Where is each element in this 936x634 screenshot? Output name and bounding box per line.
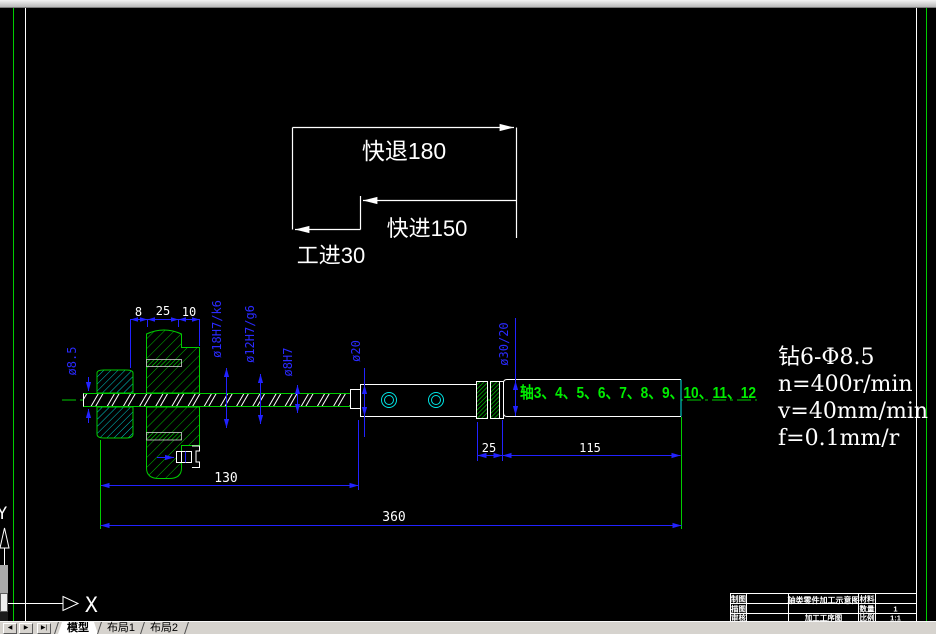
dim-dia30-20-label: ø30/20 bbox=[497, 322, 511, 365]
dim-len360-label: 360 bbox=[382, 510, 405, 525]
titleblock-scale-label: 比例 bbox=[860, 613, 875, 622]
machining-specs: 钻6-Φ8.5 n=400r/min v=40mm/min f=0.1mm/r bbox=[777, 345, 928, 451]
tab-divider bbox=[184, 622, 189, 634]
cad-window: 快退180 快进150 工进30 bbox=[0, 0, 936, 634]
scrollbar-thumb[interactable] bbox=[0, 593, 8, 612]
dim-len115-label: 115 bbox=[579, 441, 601, 455]
layout-tab-bar: ◀ ▶ ▶| 模型 布局1 布局2 bbox=[0, 621, 936, 634]
tab-nav-prev-button[interactable]: ▶ bbox=[19, 623, 33, 634]
dim-dia12-label: ø12H7/g6 bbox=[243, 305, 257, 363]
vertical-scrollbar[interactable] bbox=[0, 565, 8, 621]
titleblock-title: 轴类零件加工示意图 bbox=[788, 595, 860, 605]
drawing-canvas[interactable]: 快退180 快进150 工进30 bbox=[0, 8, 936, 621]
cycle-rapid-advance-label: 快进150 bbox=[387, 216, 468, 241]
titleblock-qty-value: 1 bbox=[893, 605, 897, 614]
dim-25-label: 25 bbox=[156, 304, 170, 318]
cycle-work-feed-label: 工进30 bbox=[297, 243, 365, 268]
spec-feedrate-label: v=40mm/min bbox=[777, 399, 928, 424]
cycle-rapid-retract-label: 快退180 bbox=[362, 138, 446, 164]
dim-len130-label: 130 bbox=[214, 471, 237, 486]
ucs-x-label: X bbox=[85, 593, 98, 617]
tab-layout1[interactable]: 布局1 bbox=[101, 622, 141, 634]
titleblock-subtitle: 加工工序图 bbox=[804, 613, 843, 622]
drill-rod bbox=[84, 394, 352, 407]
dim-dia8h7-label: ø8H7 bbox=[281, 348, 295, 377]
tab-divider bbox=[54, 622, 59, 634]
titleblock-row1-label: 制图 bbox=[731, 594, 746, 604]
shaft-enumeration-label: 轴3、4、5、6、7、8、9、10、11、12 bbox=[520, 383, 756, 402]
spec-drill-label: 钻6-Φ8.5 bbox=[778, 345, 874, 370]
drawing-frame bbox=[14, 8, 927, 621]
dim-10-label: 10 bbox=[182, 305, 196, 319]
tab-model[interactable]: 模型 bbox=[58, 622, 98, 634]
titleblock-scale-value: 1:1 bbox=[890, 614, 901, 622]
spec-speed-label: n=400r/min bbox=[778, 372, 913, 397]
titleblock-row3-label: 审核 bbox=[731, 613, 746, 622]
titleblock-qty-label: 数量 bbox=[860, 604, 875, 614]
titleblock-row2-label: 描图 bbox=[731, 604, 746, 614]
scrollbar-down-button[interactable] bbox=[0, 612, 8, 621]
ucs-icon bbox=[0, 528, 78, 611]
dim-dia18-label: ø18H7/k6 bbox=[210, 300, 224, 358]
tab-layout2[interactable]: 布局2 bbox=[144, 622, 184, 634]
dim-dia8.5-label: ø8.5 bbox=[65, 347, 79, 376]
title-block: 制图 描图 审核 轴类零件加工示意图 加工工序图 材料 数量 比例 1 1:1 bbox=[730, 594, 916, 622]
dim-dia20-label: ø20 bbox=[349, 340, 363, 362]
dim-len25-label: 25 bbox=[482, 441, 496, 455]
titleblock-material-label: 材料 bbox=[860, 594, 875, 604]
tab-nav-first-button[interactable]: ◀ bbox=[3, 623, 17, 634]
engineering-drawing: 快退180 快进150 工进30 bbox=[0, 8, 936, 621]
dim-8-label: 8 bbox=[135, 305, 142, 319]
spec-feed-label: f=0.1mm/r bbox=[778, 426, 900, 451]
ucs-y-label: Y bbox=[0, 504, 7, 524]
window-titlebar bbox=[0, 0, 936, 8]
tab-nav-next-button[interactable]: ▶| bbox=[37, 623, 51, 634]
